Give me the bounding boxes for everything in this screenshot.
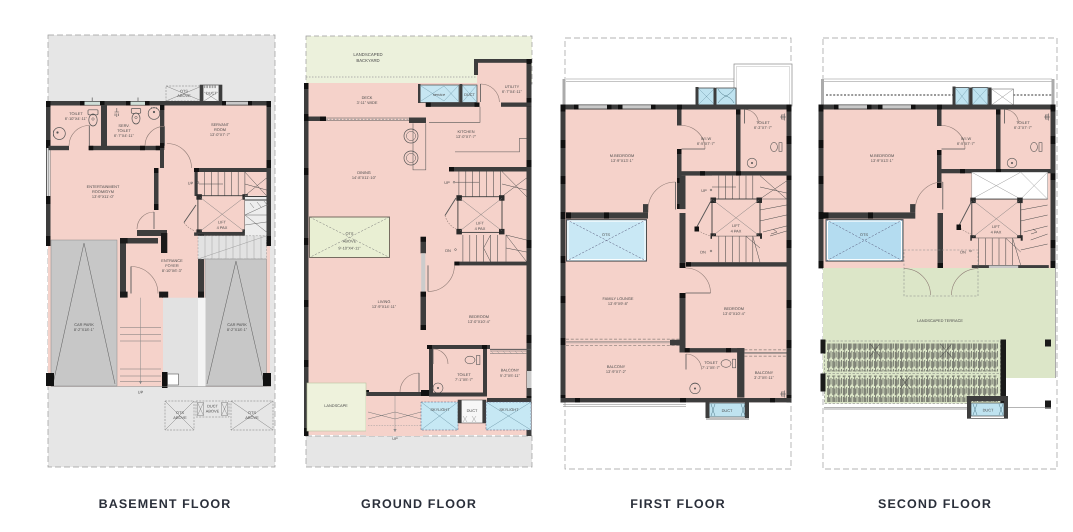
svg-text:DUCT: DUCT [464,92,475,97]
svg-text:GROUND FLOOR: GROUND FLOOR [361,497,477,511]
svg-text:4 PAX: 4 PAX [731,229,742,234]
svg-text:ABOVE: ABOVE [343,239,357,244]
svg-text:UP: UP [392,436,398,441]
svg-text:13'-9"X7'-2": 13'-9"X7'-2" [606,369,627,374]
svg-text:DN: DN [445,248,451,253]
svg-text:LIFT: LIFT [732,223,741,228]
svg-text:7'-1"X5'-7": 7'-1"X5'-7" [702,365,721,370]
svg-text:13'-9"X14'-11": 13'-9"X14'-11" [372,304,397,309]
svg-text:8'-2"X18'-1": 8'-2"X18'-1" [74,327,95,332]
svg-text:LIFT: LIFT [992,224,1001,229]
svg-text:6'-5"X7'-7": 6'-5"X7'-7" [697,141,716,146]
svg-text:8'-10"X6'-3": 8'-10"X6'-3" [162,268,183,273]
svg-text:3'-11" WIDE: 3'-11" WIDE [357,100,378,105]
svg-text:LANDSCAPED: LANDSCAPED [353,52,382,57]
svg-text:UP: UP [188,181,194,186]
svg-text:6'-3"X7'-7": 6'-3"X7'-7" [754,125,773,130]
svg-text:13'-9"X9'-8": 13'-9"X9'-8" [608,301,629,306]
svg-text:6'-7"X4'-11": 6'-7"X4'-11" [114,133,135,138]
svg-text:OTS: OTS [602,232,610,237]
svg-text:UP: UP [444,180,450,185]
svg-text:5'-2"X5'-11": 5'-2"X5'-11" [500,373,521,378]
svg-text:4 PAX: 4 PAX [475,226,486,231]
svg-text:LIFT: LIFT [476,221,485,226]
svg-text:6'-7"X4'-11": 6'-7"X4'-11" [502,89,523,94]
svg-text:3'-2"X5'-11": 3'-2"X5'-11" [754,375,775,380]
svg-text:9'-10"X4'-11": 9'-10"X4'-11" [338,246,361,251]
svg-text:13'-9"X11'-0": 13'-9"X11'-0" [92,194,115,199]
svg-text:4 PAX: 4 PAX [991,230,1002,235]
svg-text:SKYLIGHT: SKYLIGHT [499,407,519,412]
svg-text:OTS: OTS [860,232,868,237]
svg-text:6'-10"X4'-11": 6'-10"X4'-11" [65,116,88,121]
svg-text:DN: DN [700,250,706,255]
svg-text:LANDSCAPE: LANDSCAPE [324,403,348,408]
svg-text:13'-0"X7'-7": 13'-0"X7'-7" [456,134,477,139]
svg-text:DUCT: DUCT [722,408,733,413]
svg-text:13'-0"X10'-4": 13'-0"X10'-4" [468,319,491,324]
svg-text:service: service [433,92,446,97]
svg-text:6'-3"X7'-7": 6'-3"X7'-7" [1014,125,1033,130]
svg-text:14'-8"X11'-10": 14'-8"X11'-10" [352,175,377,180]
svg-text:ABOVE: ABOVE [245,415,259,420]
svg-text:UP: UP [138,390,144,395]
svg-text:DUCT: DUCT [206,91,217,96]
svg-text:OTS: OTS [346,231,354,236]
svg-text:BASEMENT FLOOR: BASEMENT FLOOR [99,497,232,511]
svg-text:LIFT: LIFT [218,220,227,225]
svg-text:SECOND FLOOR: SECOND FLOOR [878,497,992,511]
svg-text:ABOVE: ABOVE [173,415,187,420]
svg-text:BACKYARD: BACKYARD [356,58,379,63]
svg-text:4 PAX: 4 PAX [217,225,228,230]
svg-text:LANDSCAPED TERRACE: LANDSCAPED TERRACE [917,318,963,323]
svg-text:13'-9"X13'-1": 13'-9"X13'-1" [611,158,634,163]
svg-text:7'-1"X5'-7": 7'-1"X5'-7" [455,377,474,382]
svg-text:UP: UP [701,188,707,193]
svg-text:DUCT: DUCT [983,408,994,413]
svg-text:ABOVE: ABOVE [177,93,191,98]
svg-text:ABOVE: ABOVE [206,409,220,414]
svg-text:13'-0"X10'-4": 13'-0"X10'-4" [723,311,746,316]
svg-text:SKYLIGHT: SKYLIGHT [430,407,450,412]
svg-text:13'-0"X7'-7": 13'-0"X7'-7" [210,132,231,137]
svg-text:DUCT: DUCT [467,408,478,413]
svg-text:BALCONY: BALCONY [501,368,520,373]
svg-text:13'-9"X13'-1": 13'-9"X13'-1" [871,158,894,163]
svg-text:FIRST FLOOR: FIRST FLOOR [630,497,725,511]
svg-text:8'-2"X18'-1": 8'-2"X18'-1" [227,327,248,332]
svg-text:6'-5"X7'-7": 6'-5"X7'-7" [957,141,976,146]
